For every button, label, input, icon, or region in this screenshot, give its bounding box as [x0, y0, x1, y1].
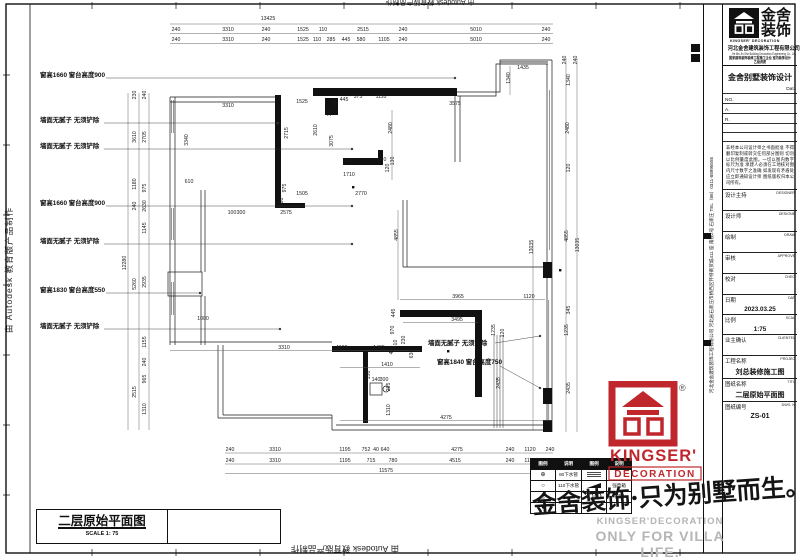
dimension-label: 1145 — [142, 222, 148, 233]
dimension-label: 240 — [546, 447, 555, 453]
dimension-label: 240 — [542, 37, 551, 43]
dimension-label: 970 — [390, 326, 396, 335]
dimension-label: 300 — [237, 210, 246, 216]
leader-dot — [351, 205, 353, 207]
dimension-label: 110 — [319, 27, 327, 33]
plan-note-label: 窗高1830 窗台高度550 — [40, 285, 105, 294]
dimension-label: 1525 — [297, 37, 309, 43]
walls-thin — [168, 60, 552, 432]
plan-note-label: 墙面无腻子 无须铲除 — [40, 141, 100, 150]
dimension-label: 240 — [573, 56, 579, 65]
dimension-label: 1525 — [296, 99, 308, 105]
kingser-wordmark: KINGSER' — [610, 447, 697, 465]
leader-dot — [351, 243, 353, 245]
dimension-label: 2435 — [566, 382, 572, 394]
dimension-label: 1505 — [296, 191, 308, 197]
dimension-label: 1195 — [339, 458, 350, 464]
brand-footer-line1: KINGSER'DECORATION — [575, 516, 745, 527]
dimension-label: 780 — [389, 458, 398, 464]
dimension-label: 240 — [172, 37, 181, 43]
dimension-label: 975 — [282, 184, 288, 193]
dimension-label: 2435 — [496, 377, 502, 389]
leader-dot — [454, 77, 456, 79]
kingser-emblem-icon: ® KINGSER' DECORATION — [607, 381, 707, 485]
dimension-label: 3310 — [269, 447, 281, 453]
dimension-label: 4855 — [564, 230, 570, 242]
dimension-label: 3310 — [222, 103, 234, 109]
leader-dot — [199, 292, 201, 294]
brand-footer-line2: ONLY FOR VILLA LIFE. — [575, 528, 745, 558]
dimension-label: 240 — [132, 202, 138, 211]
dimension-label: 240 — [172, 27, 181, 33]
dimension-label: 1340 — [506, 72, 512, 84]
dimension-label: 2575 — [280, 210, 292, 216]
dimension-label: 405 — [332, 99, 338, 108]
dimension-label: 13425 — [261, 16, 276, 22]
dimension-label: 610 — [185, 179, 194, 185]
dimension-label: 1195 — [339, 447, 350, 453]
dimension-label: 2770 — [355, 191, 367, 197]
dimension-label: 345 — [566, 306, 572, 315]
dimension-label: 120 — [385, 164, 391, 173]
plan-note-label: 墙面无腻子 无须铲除 — [428, 338, 488, 347]
dimension-label: 2480 — [565, 122, 571, 134]
dimension-label: 2935 — [142, 276, 148, 288]
leader-dot — [539, 335, 541, 337]
dimension-label: 2715 — [284, 127, 290, 139]
dimension-label: 240 — [506, 447, 515, 453]
dimension-label: 2610 — [313, 124, 319, 136]
dimension-label: 365 — [327, 108, 333, 117]
dimension-label: 575 — [354, 94, 363, 100]
dimension-label: 240 — [262, 27, 271, 33]
dimension-label: 4515 — [449, 458, 461, 464]
dimension-label: 240 — [399, 37, 408, 43]
dimension-label: 150 — [366, 371, 372, 380]
dimension-label: 1155 — [142, 336, 148, 347]
dimension-label: 13035 — [529, 240, 535, 255]
dimension-label: 975 — [142, 184, 148, 193]
dimension-label: 12280 — [122, 256, 128, 271]
dimension-label: 4855 — [394, 229, 400, 241]
dimension-label: 3075 — [329, 135, 335, 147]
dimension-label: 1435 — [517, 65, 529, 71]
legend-symbol-cell: ⊕ — [531, 470, 556, 481]
dimension-label: 3610 — [132, 131, 138, 143]
dimension-label: 1710 — [343, 172, 355, 178]
dimension-label: 300 — [380, 377, 389, 383]
dimension-label: 3310 — [222, 27, 234, 33]
leader-dot — [277, 122, 279, 124]
dimension-label: 4275 — [451, 447, 463, 453]
dimension-label: 5010 — [470, 37, 482, 43]
dimension-label: 120 — [566, 164, 572, 173]
legend-header-cell: 说明 — [556, 459, 582, 470]
dimension-label: 2515 — [357, 27, 369, 33]
plan-note-label: 墙面无腻子 无须铲除 — [40, 115, 100, 124]
dimension-label: 3310 — [278, 345, 290, 351]
dimension-label: 240 — [262, 37, 271, 43]
dimension-label: 445 — [391, 309, 397, 318]
leader-dot — [539, 387, 541, 389]
dimension-label: 810 — [378, 157, 387, 163]
dimension-label: 640 — [381, 447, 390, 453]
dimension-label: 3495 — [451, 317, 463, 323]
dimension-label: 1180 — [132, 178, 138, 189]
plan-note-label: 墙面无腻子 无须铲除 — [40, 236, 100, 245]
plan-note-label: 窗高1660 窗台高度900 — [40, 198, 105, 207]
dimension-label: 4275 — [440, 415, 452, 421]
hatch-lines-icon — [586, 471, 602, 478]
dimension-label: 1600 — [343, 158, 355, 164]
dimension-label: 40 — [373, 447, 379, 453]
dimension-label: 630 — [409, 350, 415, 359]
dimension-label: 3310 — [269, 458, 281, 464]
plan-note-label: 窗高1660 窗台高度900 — [40, 70, 105, 79]
dimension-label: 240 — [142, 91, 148, 100]
dimension-label: 13035 — [575, 238, 581, 253]
dimension-label: 1310 — [142, 403, 148, 415]
dimension-label: 120 — [500, 329, 506, 338]
plan-note-label: 窗高1840 窗台高度750 — [437, 357, 502, 366]
registered-mark: ® — [679, 383, 686, 393]
dimension-label: 1120 — [523, 294, 534, 300]
dimension-label: 445 — [340, 97, 349, 103]
dimension-label: 240 — [226, 447, 235, 453]
legend-header-cell: 图例 — [582, 459, 607, 470]
dimension-label: 2705 — [142, 131, 148, 143]
dimension-label: 445 — [342, 37, 351, 43]
dimension-label: 3340 — [184, 134, 190, 146]
dimension-label: 1120 — [524, 447, 535, 453]
dimension-label: 2480 — [388, 122, 394, 134]
dimension-label: 285 — [327, 37, 336, 43]
dimension-label: 11575 — [379, 468, 393, 474]
dimension-label: 752 — [362, 447, 371, 453]
kingser-red-logo: ® KINGSER' DECORATION — [607, 381, 707, 490]
dimension-label: 3575 — [449, 101, 461, 107]
dimension-label: 1110 — [376, 94, 387, 100]
dimension-label: 3310 — [222, 37, 234, 43]
leader-dot — [351, 148, 353, 150]
dimension-label: 3965 — [452, 294, 464, 300]
dimension-label: 2515 — [132, 386, 138, 398]
dimension-label: 240 — [542, 27, 551, 33]
dimension-label: 1000 — [197, 316, 209, 322]
dimension-label: 100 — [228, 210, 237, 216]
dimension-label: 1105 — [378, 37, 389, 43]
leader-dot — [279, 328, 281, 330]
leader-line — [500, 366, 540, 388]
dimension-label: 1195 — [336, 345, 347, 351]
cad-sheet: 1342524033102401525110251524050102402403… — [0, 0, 800, 558]
dimension-label: 240 — [506, 458, 515, 464]
dimension-label: 240 — [399, 27, 408, 33]
legend-header-cell: 图例 — [531, 459, 556, 470]
dimension-label: 180 — [279, 198, 285, 207]
dimension-label: 580 — [357, 37, 366, 43]
dimension-label: 400 — [389, 346, 395, 355]
dimension-label: 5260 — [132, 278, 138, 290]
dimension-label: 240 — [142, 358, 148, 367]
dimension-label: 1340 — [566, 74, 572, 86]
dimension-label: 965 — [142, 375, 148, 384]
dimension-label: 230 — [132, 91, 138, 100]
dimension-label: 265 — [386, 383, 392, 392]
dimension-label: 715 — [367, 458, 376, 464]
dimension-label: 230 — [401, 336, 407, 345]
dimension-label: 1410 — [381, 362, 393, 368]
legend-text-cell: 80下水管 — [556, 470, 582, 481]
dimension-label: 1235 — [491, 324, 497, 336]
dimension-label: 1235 — [564, 324, 570, 336]
dimension-label: 110 — [313, 37, 321, 43]
dimension-label: 1525 — [297, 27, 309, 33]
dimension-label: 1310 — [386, 404, 392, 416]
dimension-label: 2630 — [142, 200, 148, 212]
dimension-label: 240 — [226, 458, 235, 464]
brand-footer: KINGSER'DECORATION ONLY FOR VILLA LIFE. — [575, 516, 745, 558]
dimension-label: 240 — [562, 56, 568, 65]
plan-note-label: 墙面无腻子 无须铲除 — [40, 321, 100, 330]
dimension-label: 1495 — [373, 345, 385, 351]
dimension-label: 5010 — [470, 27, 482, 33]
legend-symbol-cell — [582, 470, 607, 481]
